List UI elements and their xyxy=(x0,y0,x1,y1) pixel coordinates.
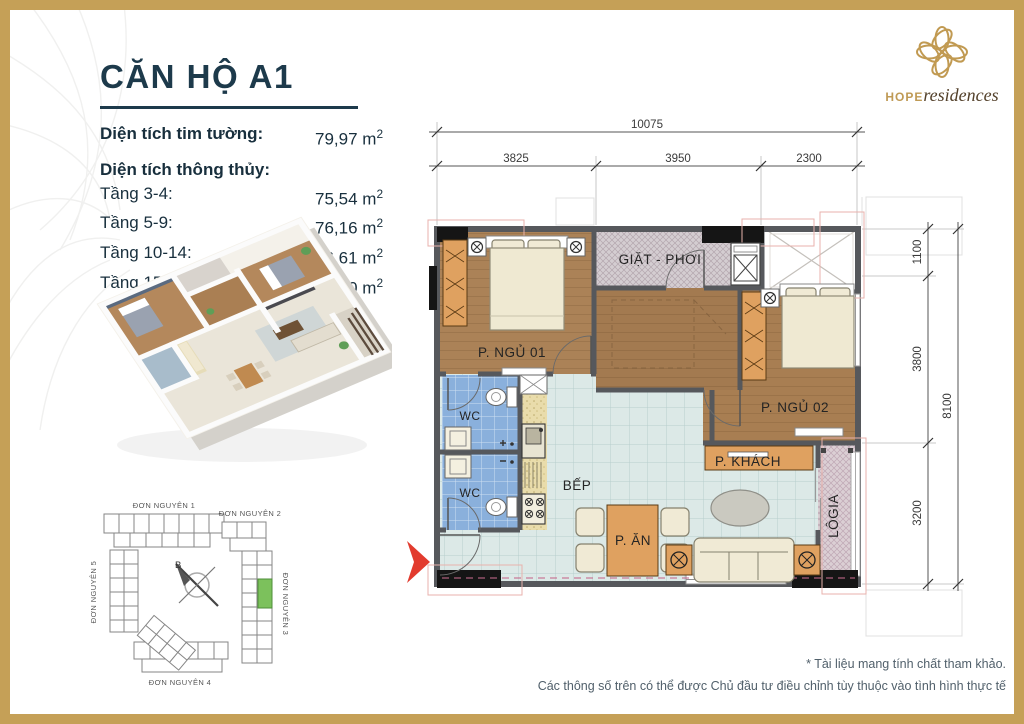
room-label-wc2: WC xyxy=(460,486,481,500)
dim-seg-2: 3950 xyxy=(665,153,691,165)
dim-right-total: 8100 xyxy=(942,393,954,419)
dimensions-right: 1100 3800 3200 8100 xyxy=(912,222,963,591)
site-label-dn2: ĐƠN NGUYÊN 2 xyxy=(219,509,282,518)
dim-right-1: 1100 xyxy=(912,240,924,265)
site-label-dn1: ĐƠN NGUYÊN 1 xyxy=(133,501,196,510)
floor-plan: 10075 3825 3950 2300 1100 3800 3200 8100 xyxy=(400,105,975,640)
dim-total-width: 10075 xyxy=(631,119,663,131)
logo-brand-suffix: residences xyxy=(923,85,998,105)
area-tim-tuong: Diện tích tim tường: 79,97 m2 xyxy=(100,123,430,151)
room-label-ngu02: P. NGỦ 02 xyxy=(761,400,829,415)
dim-right-3: 3200 xyxy=(912,500,924,526)
brochure-page: CĂN HỘ A1 Diện tích tim tường: 79,97 m2 … xyxy=(0,0,1024,724)
area-label: Diện tích thông thủy: xyxy=(100,159,315,181)
site-label-dn5: ĐƠN NGUYÊN 5 xyxy=(89,561,98,624)
isometric-3d-view xyxy=(82,200,392,485)
area-thong-thuy-header: Diện tích thông thủy: xyxy=(100,159,430,181)
disclaimer-line2: Các thông số trên có thể được Chủ đầu tư… xyxy=(538,675,1006,697)
site-plan-key: ĐƠN NGUYÊN 1 ĐƠN NGUYÊN 2 ĐƠN NGUYÊN 3 Đ… xyxy=(72,492,312,712)
room-label-ngu01: P. NGỦ 01 xyxy=(478,345,546,360)
area-label: Diện tích tim tường: xyxy=(100,123,315,151)
logo-brand-name: hope xyxy=(885,86,923,105)
room-label-wc1: WC xyxy=(460,409,481,423)
page-title: CĂN HỘ A1 xyxy=(100,58,430,96)
site-label-dn3: ĐƠN NGUYÊN 3 xyxy=(281,573,290,636)
highlighted-unit xyxy=(258,579,272,608)
dim-right-2: 3800 xyxy=(912,346,924,372)
logo-knot-icon xyxy=(915,26,969,78)
compass-north-label: B xyxy=(175,560,181,571)
room-label-giat-phoi: GIẶT - PHƠI xyxy=(619,252,702,267)
site-label-dn4: ĐƠN NGUYÊN 4 xyxy=(149,678,212,687)
entry-arrow xyxy=(407,541,430,583)
room-label-logia: LÔGIA xyxy=(826,494,841,538)
room-label-khach: P. KHÁCH xyxy=(715,454,781,469)
room-label-bep: BẾP xyxy=(563,478,592,493)
title-underline xyxy=(100,106,358,109)
hope-residences-logo: hoperesidences xyxy=(872,26,1012,106)
compass-icon xyxy=(176,564,218,606)
dim-seg-1: 3825 xyxy=(503,153,529,165)
room-label-an: P. ĂN xyxy=(615,533,651,548)
disclaimer: * Tài liệu mang tính chất tham khảo. Các… xyxy=(538,653,1006,697)
dim-seg-3: 2300 xyxy=(796,153,822,165)
dimensions-top: 10075 3825 3950 2300 xyxy=(429,119,865,171)
area-value: 79,97 xyxy=(315,130,358,149)
disclaimer-line1: * Tài liệu mang tính chất tham khảo. xyxy=(538,653,1006,675)
